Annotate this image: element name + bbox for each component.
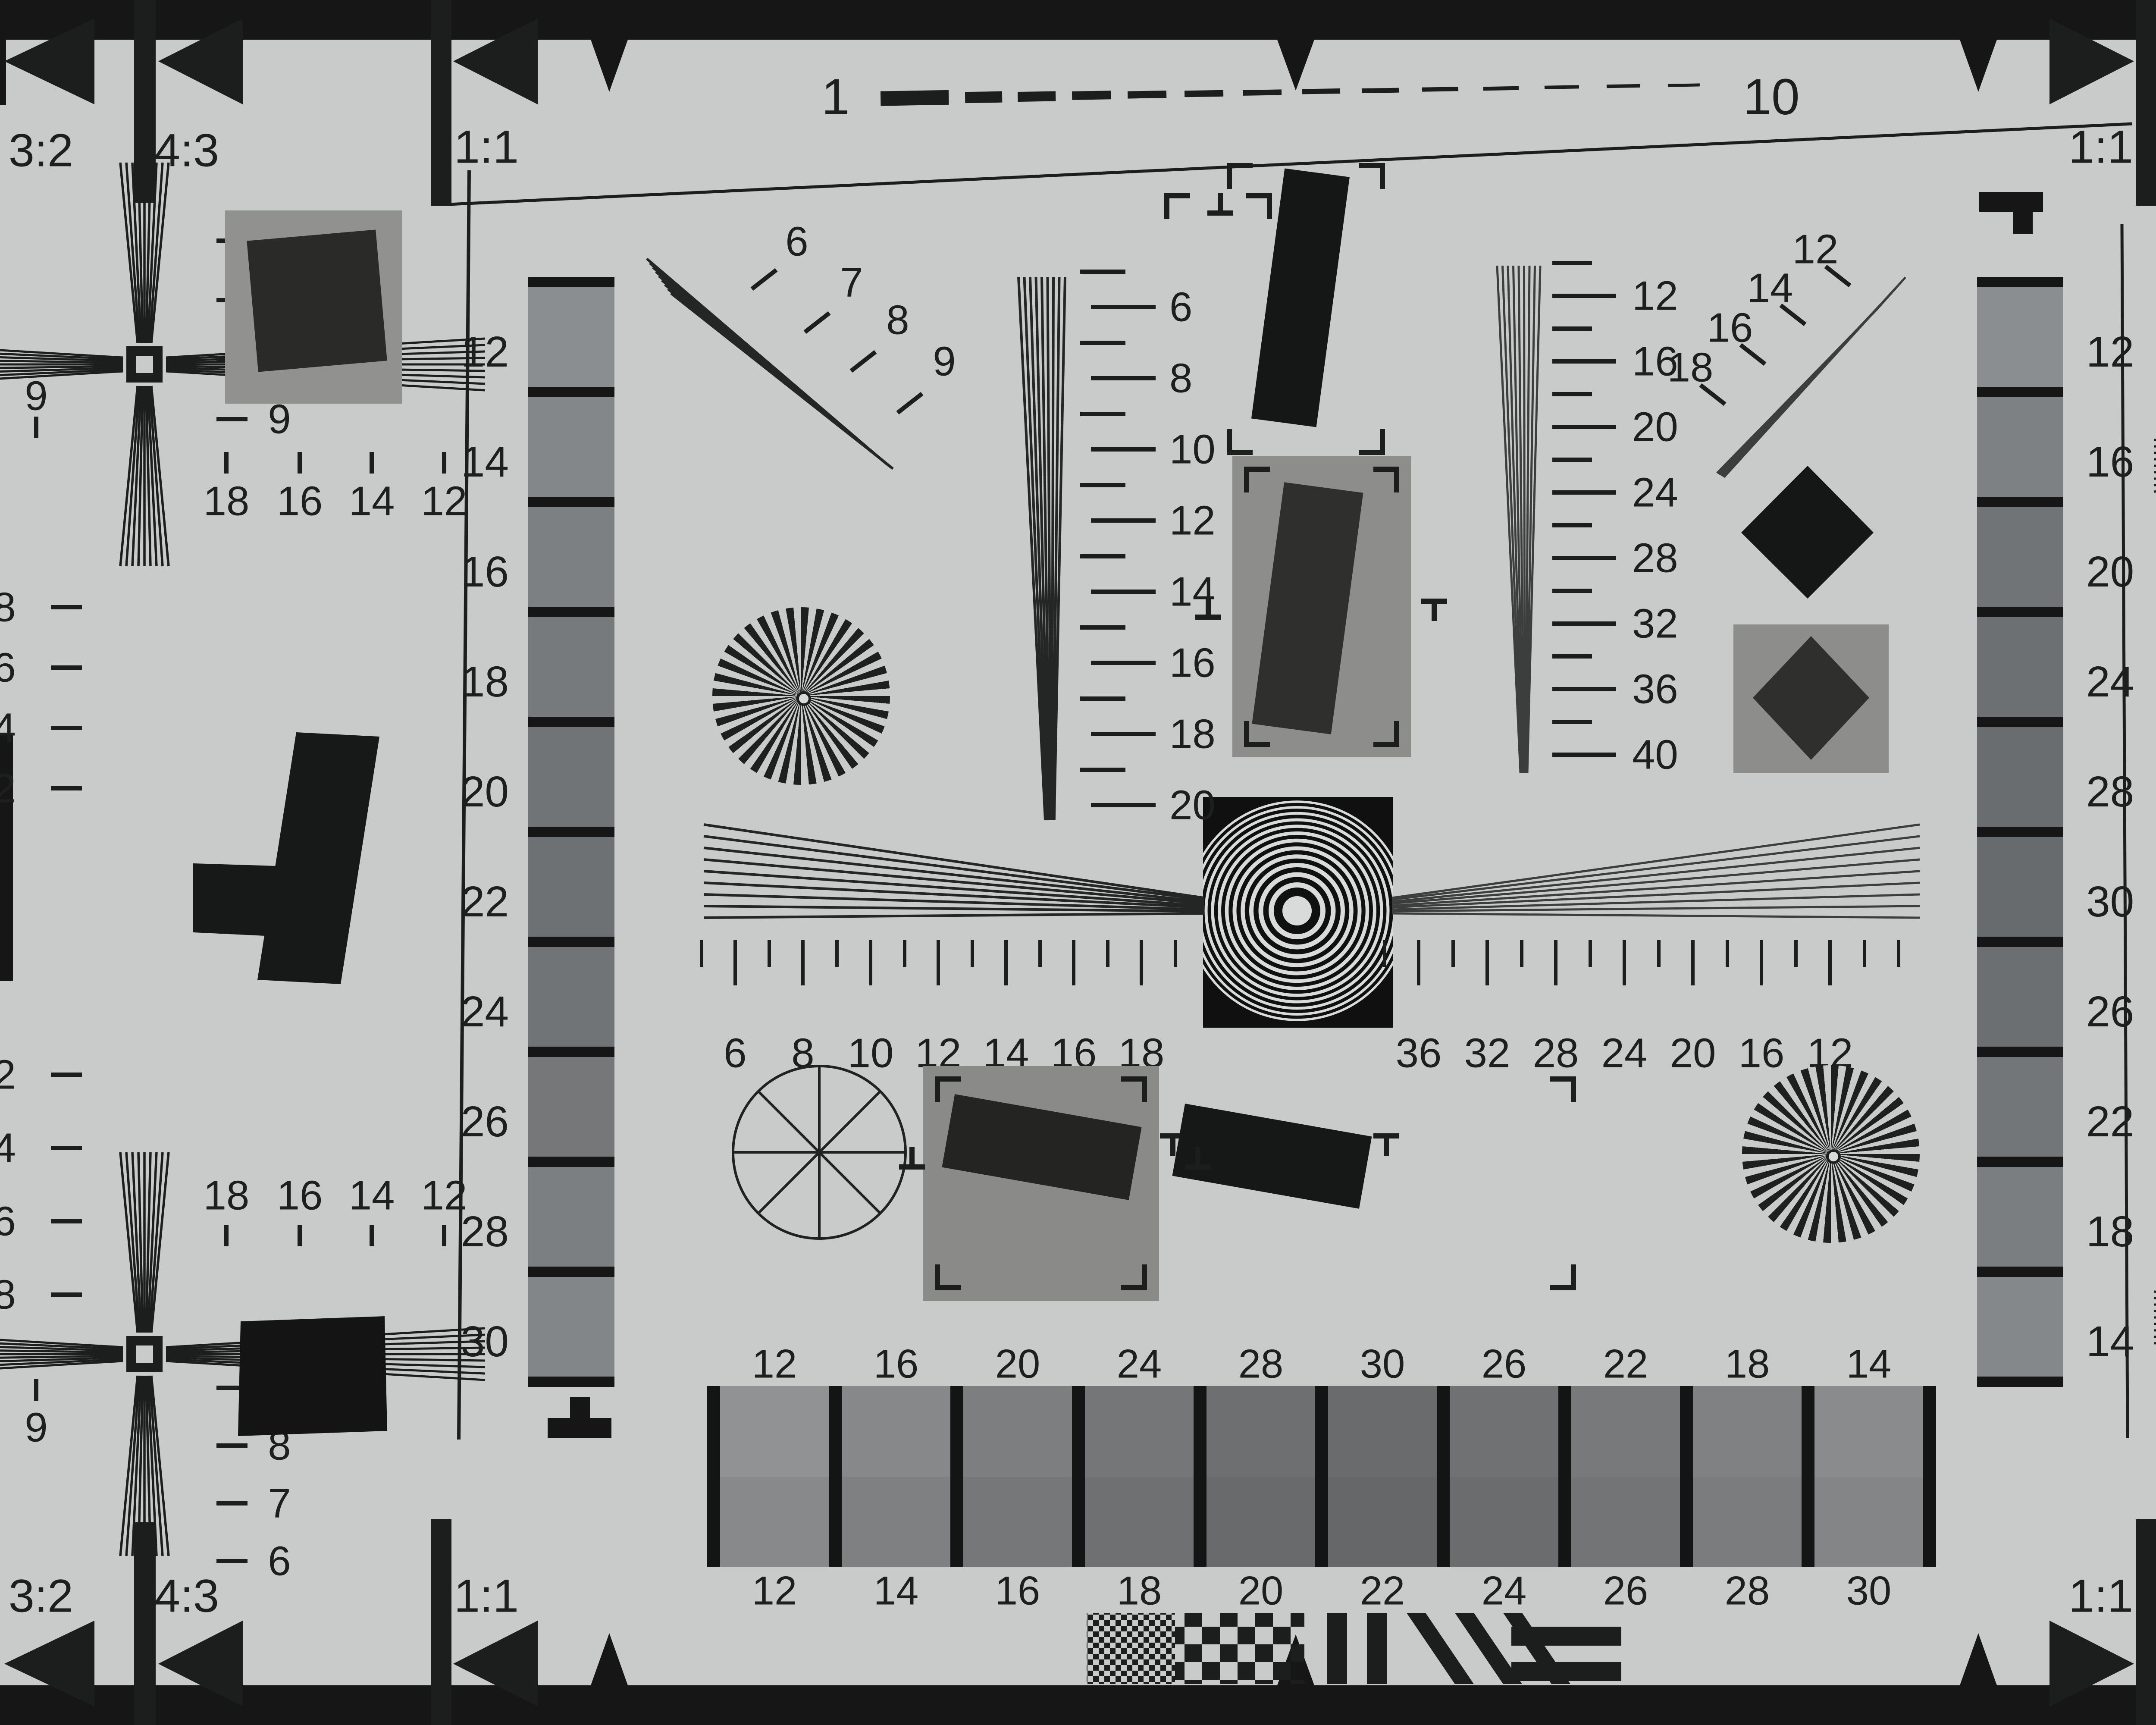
svg-text:26: 26 <box>2086 988 2134 1036</box>
aspect-label: 1:1 <box>454 121 519 173</box>
black-tilted-bar <box>1172 1104 1372 1209</box>
svg-text:28: 28 <box>1238 1341 1284 1386</box>
zone-plate <box>1188 797 1406 1028</box>
frame-notch-triangle <box>591 40 628 92</box>
right-column-t-mark <box>1979 192 2043 234</box>
svg-text:30: 30 <box>1846 1568 1892 1613</box>
h-scale-left: 6 8 10 12 14 16 18 <box>700 940 1177 1076</box>
svg-text:16: 16 <box>1707 305 1753 351</box>
svg-text:14: 14 <box>1846 1341 1892 1386</box>
svg-text:7: 7 <box>840 260 863 306</box>
dark-patch <box>247 230 387 372</box>
svg-text:24: 24 <box>2086 658 2134 706</box>
svg-text:12: 12 <box>1792 226 1839 273</box>
horizontal-bars-glyph <box>1511 1627 1621 1681</box>
svg-text:8: 8 <box>0 584 16 630</box>
svg-text:14: 14 <box>349 478 395 524</box>
svg-text:20: 20 <box>461 768 509 816</box>
aspect-label: 1:1 <box>2068 121 2133 173</box>
svg-text:8: 8 <box>0 1272 16 1318</box>
svg-text:14: 14 <box>2086 1317 2134 1366</box>
svg-text:6: 6 <box>1169 284 1192 330</box>
black-patch <box>238 1316 387 1436</box>
svg-text:12: 12 <box>2086 328 2134 376</box>
svg-text:36: 36 <box>1396 1030 1442 1076</box>
svg-text:16: 16 <box>461 548 509 596</box>
svg-text:18: 18 <box>1117 1568 1162 1613</box>
ruler-start-label: 1 <box>821 69 850 125</box>
svg-text:20: 20 <box>1670 1030 1716 1076</box>
right-step-column: 1216 2024 2830 2622 1814 <box>1977 192 2134 1387</box>
svg-text:20: 20 <box>1238 1568 1284 1613</box>
svg-text:14: 14 <box>461 438 509 486</box>
cross-wedge-top-right: 6 7 8 9 12 14 16 18 9 <box>2154 218 2156 668</box>
svg-text:22: 22 <box>461 878 509 926</box>
svg-text:12: 12 <box>421 1173 467 1219</box>
v-wedge-left <box>1018 277 1065 820</box>
big-t-left <box>193 732 379 984</box>
svg-text:14: 14 <box>1169 569 1216 615</box>
frame-notch-triangle <box>1960 1633 1997 1685</box>
svg-text:10: 10 <box>1169 427 1216 473</box>
svg-text:18: 18 <box>2086 1207 2134 1256</box>
svg-text:2: 2 <box>0 1052 16 1098</box>
svg-text:4: 4 <box>0 705 16 751</box>
chart-graphics: 3:2 4:3 1:1 1:1 4:3 3:2 3:2 4:3 1:1 1:1 … <box>0 0 2156 1725</box>
svg-text:14: 14 <box>1747 265 1793 311</box>
svg-text:20: 20 <box>995 1341 1040 1386</box>
svg-text:28: 28 <box>1533 1030 1579 1076</box>
vertical-bars-glyph <box>1327 1613 1387 1684</box>
svg-text:12: 12 <box>1632 273 1678 319</box>
svg-text:28: 28 <box>461 1207 509 1256</box>
svg-text:20: 20 <box>1169 782 1216 828</box>
black-diamond <box>1741 466 1874 599</box>
svg-text:7: 7 <box>268 1480 291 1527</box>
svg-text:24: 24 <box>461 988 509 1036</box>
svg-text:12: 12 <box>752 1341 797 1386</box>
left-step-labels: 1214 1618 2022 2426 2830 <box>461 328 509 1366</box>
svg-text:20: 20 <box>2086 548 2134 596</box>
svg-text:26: 26 <box>461 1098 509 1146</box>
h-wedge-left <box>704 825 1204 918</box>
left-column-t-mark <box>548 1397 611 1438</box>
svg-text:32: 32 <box>1464 1030 1510 1076</box>
svg-text:8: 8 <box>886 297 909 343</box>
svg-text:6: 6 <box>724 1030 746 1076</box>
aspect-label: 3:2 <box>9 1570 73 1622</box>
svg-text:40: 40 <box>1632 732 1678 778</box>
cross-wedge-bottom-right: 9 8 7 6 12 14 16 18 9 <box>2154 1116 2156 1584</box>
svg-text:24: 24 <box>1482 1568 1527 1613</box>
svg-text:16: 16 <box>277 1173 323 1219</box>
siemens-star-left <box>712 607 890 785</box>
aspect-bar <box>2136 1519 2156 1725</box>
svg-text:8: 8 <box>1169 355 1192 401</box>
aspect-label: 1:1 <box>454 1570 519 1622</box>
svg-text:18: 18 <box>204 478 250 524</box>
svg-text:10: 10 <box>848 1030 894 1076</box>
svg-text:20: 20 <box>1632 404 1678 450</box>
svg-text:18: 18 <box>1725 1341 1770 1386</box>
frame-notch-triangle <box>1960 40 1997 92</box>
ruler-dashes <box>881 77 1700 106</box>
svg-text:32: 32 <box>1632 601 1678 647</box>
siemens-star-right <box>1742 1065 1920 1243</box>
svg-text:18: 18 <box>1169 711 1216 757</box>
h-scale-right: 36 32 28 24 20 16 12 <box>1383 940 1900 1076</box>
svg-text:9: 9 <box>25 373 47 419</box>
svg-text:22: 22 <box>1603 1341 1648 1386</box>
svg-text:14: 14 <box>349 1173 395 1219</box>
aspect-label: 3:2 <box>9 124 73 176</box>
v-wedge-right <box>1497 266 1540 773</box>
aspect-bar <box>2136 0 2156 206</box>
svg-text:36: 36 <box>1632 666 1678 712</box>
svg-text:6: 6 <box>785 219 808 265</box>
tilted-bar <box>1251 169 1350 427</box>
svg-text:14: 14 <box>874 1568 919 1613</box>
bottom-pattern-block <box>1087 1613 1621 1684</box>
svg-text:30: 30 <box>2086 878 2134 926</box>
svg-text:16: 16 <box>277 478 323 524</box>
zone-plate-rings <box>1188 802 1406 1020</box>
svg-text:6: 6 <box>0 1198 16 1245</box>
svg-text:26: 26 <box>1603 1568 1648 1613</box>
aspect-bar <box>431 0 451 206</box>
svg-text:24: 24 <box>1632 470 1678 516</box>
bottom-strip-bottom-labels: 1214 1618 2022 2426 2830 <box>752 1568 1892 1613</box>
svg-text:6: 6 <box>268 1538 291 1584</box>
svg-text:16: 16 <box>874 1341 919 1386</box>
svg-text:12: 12 <box>752 1568 797 1613</box>
diag-fan-left-labels: 6 7 8 9 <box>751 219 956 415</box>
svg-text:24: 24 <box>1117 1341 1162 1386</box>
diag-fan-right-labels: 12 14 16 18 <box>1667 226 1852 406</box>
svg-text:22: 22 <box>2086 1098 2134 1146</box>
center-gray-panel-group <box>1195 456 1447 757</box>
bottom-strip-top-labels: 1216 2024 2830 2622 1814 <box>752 1341 1892 1386</box>
sector-circle <box>733 1066 906 1239</box>
svg-text:16: 16 <box>2086 438 2134 486</box>
svg-text:18: 18 <box>204 1173 250 1219</box>
svg-text:26: 26 <box>1482 1341 1527 1386</box>
svg-text:18: 18 <box>1667 345 1714 391</box>
svg-text:16: 16 <box>1169 640 1216 686</box>
svg-text:28: 28 <box>1632 535 1678 581</box>
gray-diamond-patch <box>1733 624 1889 773</box>
lower-black-bar-group <box>1172 1076 1576 1290</box>
svg-text:12: 12 <box>1169 498 1216 544</box>
svg-text:28: 28 <box>2086 768 2134 816</box>
svg-text:9: 9 <box>25 1405 47 1451</box>
ruler-end-label: 10 <box>1743 69 1799 125</box>
svg-text:30: 30 <box>1360 1341 1405 1386</box>
resolution-test-chart: 3:2 4:3 1:1 1:1 4:3 3:2 3:2 4:3 1:1 1:1 … <box>0 0 2156 1725</box>
aspect-label: 4:3 <box>154 124 219 176</box>
frame-center-triangle <box>1277 40 1314 91</box>
aspect-label: 4:3 <box>154 1570 219 1622</box>
center-tilted-bar-group <box>1164 163 1385 455</box>
aspect-bar <box>431 1519 451 1725</box>
svg-text:6: 6 <box>0 645 16 691</box>
svg-text:9: 9 <box>933 339 956 385</box>
svg-text:16: 16 <box>1739 1030 1785 1076</box>
svg-text:18: 18 <box>461 658 509 706</box>
svg-text:4: 4 <box>0 1125 16 1171</box>
v-scale-left: 6 8 10 12 14 16 18 20 <box>1080 270 1216 828</box>
svg-text:22: 22 <box>1360 1568 1405 1613</box>
h-wedge-right <box>1392 825 1920 918</box>
right-rule <box>2122 224 2128 1438</box>
v-scale-right: 12 16 20 24 28 32 36 40 <box>1552 261 1678 778</box>
svg-text:24: 24 <box>1601 1030 1648 1076</box>
checkerboard-coarse <box>1175 1613 1304 1684</box>
lower-gray-panel-group <box>899 1066 1186 1301</box>
svg-text:2: 2 <box>0 765 16 812</box>
checkerboard-fine <box>1087 1613 1175 1684</box>
frame-notch-triangle <box>591 1633 628 1685</box>
svg-text:28: 28 <box>1725 1568 1770 1613</box>
left-step-column: 1214 1618 2022 2426 2830 <box>461 277 614 1438</box>
svg-text:16: 16 <box>995 1568 1040 1613</box>
bottom-step-strip: 1216 2024 2830 2622 1814 1214 1618 2022 … <box>707 1341 1936 1613</box>
aspect-label: 1:1 <box>2068 1570 2133 1622</box>
svg-text:12: 12 <box>421 478 467 524</box>
right-step-labels: 1216 2024 2830 2622 1814 <box>2086 328 2134 1366</box>
